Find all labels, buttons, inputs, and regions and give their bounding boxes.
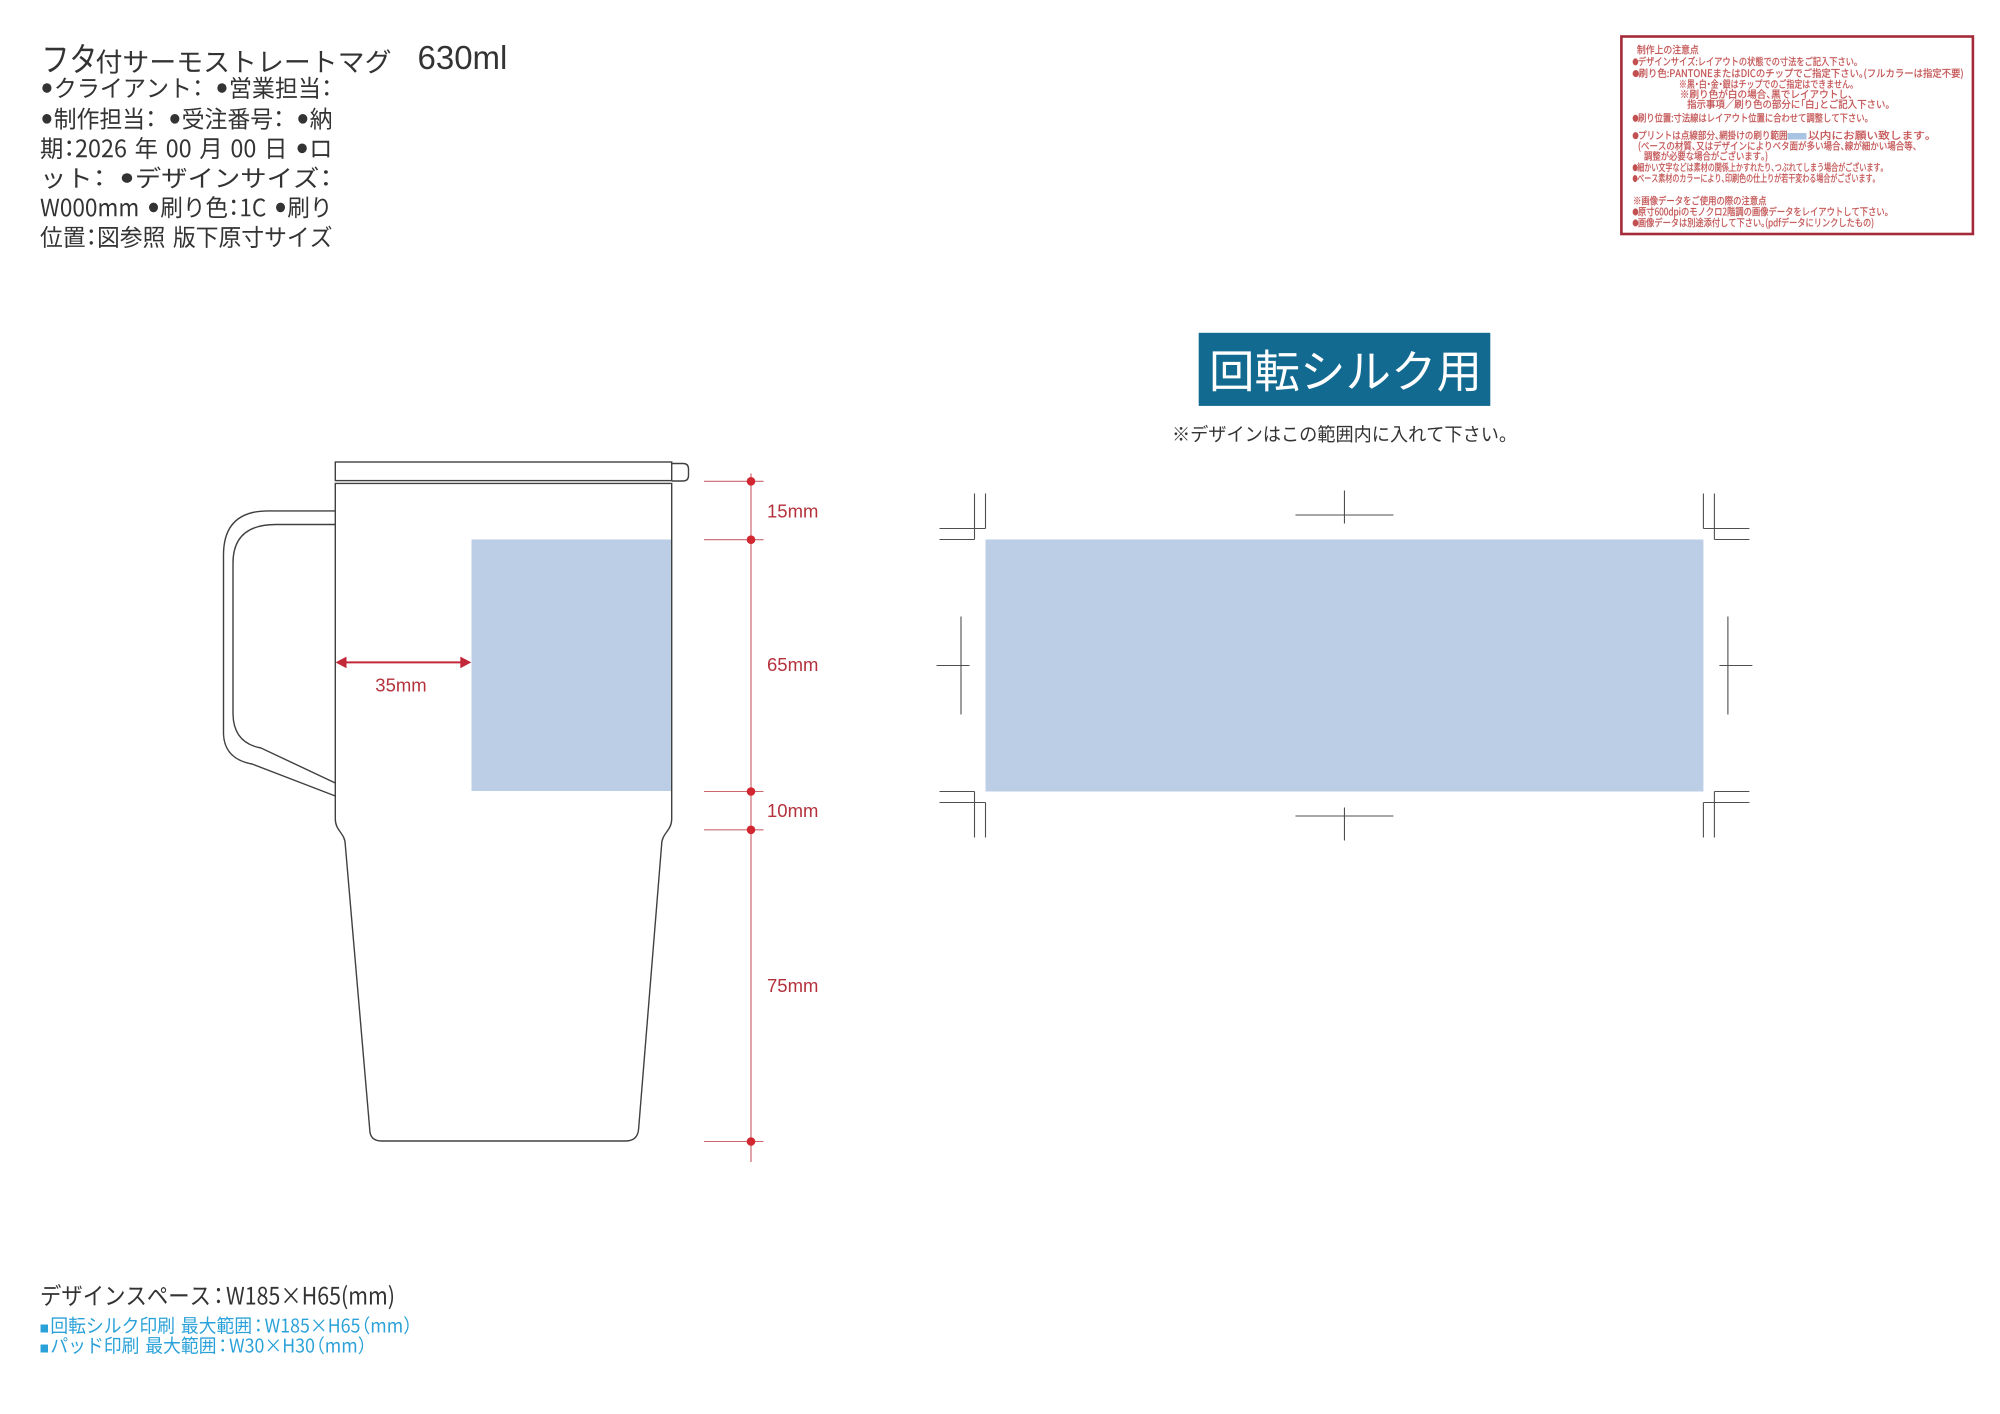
svg-text:630ml: 630ml [418, 39, 508, 76]
svg-text:15mm: 15mm [767, 501, 818, 522]
svg-text:75mm: 75mm [767, 975, 818, 996]
svg-text:65mm: 65mm [767, 654, 818, 675]
svg-text:35mm: 35mm [375, 675, 426, 696]
svg-text:10mm: 10mm [767, 800, 818, 821]
